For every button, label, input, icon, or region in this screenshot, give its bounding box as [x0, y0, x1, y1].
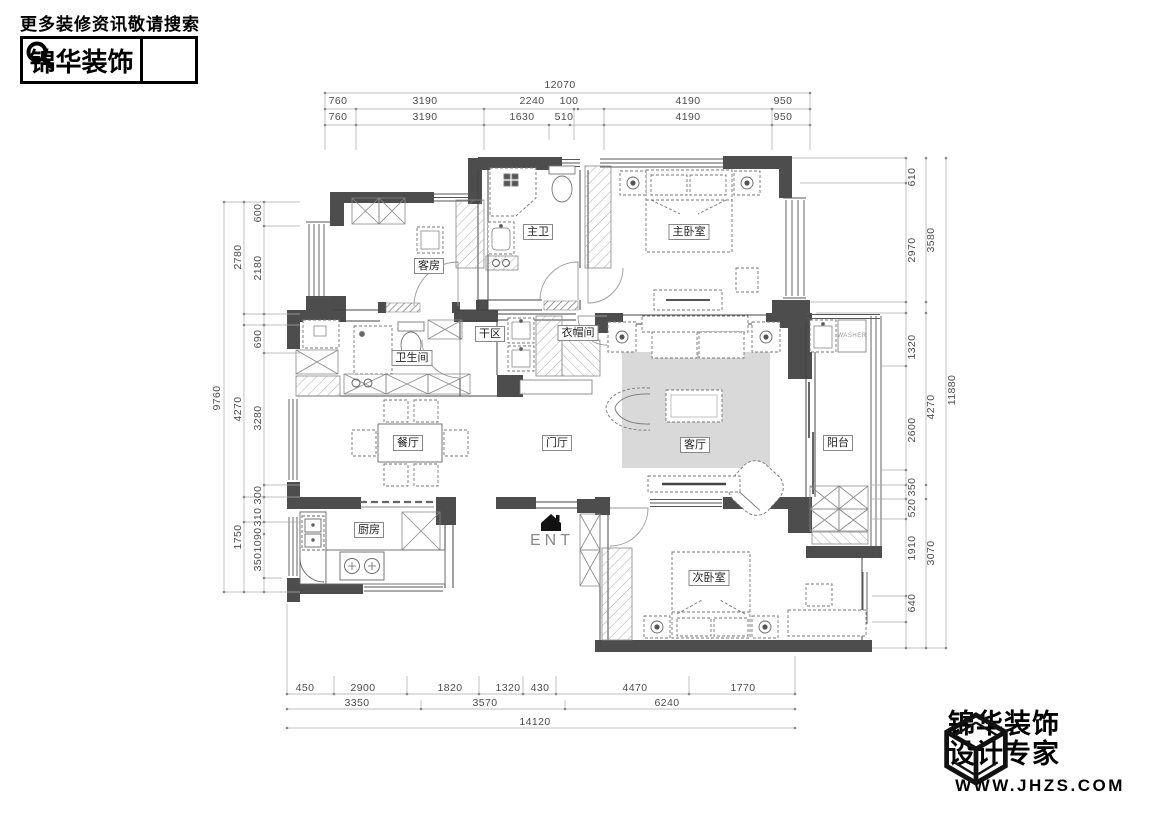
- cube-logo-icon: [940, 710, 1012, 788]
- room-label-master-bath: 主卫: [523, 224, 553, 240]
- dining-chair: [444, 430, 468, 456]
- room-label-master-bed: 主卧室: [669, 224, 710, 240]
- desk-chair: [806, 584, 832, 606]
- stove: [340, 552, 384, 580]
- dim: 450: [296, 682, 315, 694]
- dim: 3190: [413, 95, 438, 107]
- dining-chair: [384, 400, 408, 422]
- second-bedroom-door: [610, 508, 648, 546]
- guest-furniture: [417, 227, 443, 253]
- master-bath-fixtures: [488, 166, 575, 267]
- dim: 760: [329, 111, 348, 123]
- dim: 1320: [496, 682, 521, 694]
- dining-chair: [384, 464, 408, 486]
- dim: 4270: [925, 395, 937, 420]
- dining-chair: [414, 400, 438, 422]
- dim: 310: [252, 508, 264, 527]
- master-bath-counter: [486, 256, 518, 270]
- dim: 520: [906, 499, 918, 518]
- dim: 1750: [232, 525, 244, 550]
- master-bath-door: [540, 262, 578, 300]
- dim: 1770: [731, 682, 756, 694]
- header-brand-box: 锦华装饰: [20, 36, 198, 84]
- dim: 2900: [351, 682, 376, 694]
- dim-left-total: 9760: [211, 386, 223, 411]
- dim: 1320: [906, 335, 918, 360]
- tv-cabinet: [648, 476, 740, 492]
- floor-plan-drawing: [0, 0, 1158, 818]
- second-bed: [644, 552, 866, 638]
- dim: 350: [906, 478, 918, 497]
- dim: 2780: [232, 245, 244, 270]
- room-label-dry-area: 干区: [475, 326, 505, 342]
- divider: [140, 39, 143, 81]
- master-bedroom-door: [588, 268, 623, 303]
- guest-closet: [456, 200, 484, 268]
- dim: 760: [329, 95, 348, 107]
- dim: 6240: [655, 697, 680, 709]
- sofa: [608, 316, 780, 358]
- desk: [788, 610, 866, 636]
- entrance-icon: [541, 514, 561, 531]
- entrance-label: ENT: [530, 532, 574, 550]
- dim: 690: [252, 330, 264, 349]
- dim: 3350: [345, 697, 370, 709]
- dim: 640: [906, 594, 918, 613]
- dim: 3280: [252, 406, 264, 431]
- dim: 4470: [623, 682, 648, 694]
- dim: 3190: [413, 111, 438, 123]
- room-label-cloak: 衣帽间: [558, 325, 599, 341]
- room-label-living: 客厅: [680, 437, 710, 453]
- dim: 950: [774, 95, 793, 107]
- dim: 4190: [676, 95, 701, 107]
- dim: 1910: [906, 536, 918, 561]
- dim: 2240: [520, 95, 545, 107]
- dim: 610: [906, 168, 918, 187]
- room-label-foyer: 门厅: [542, 435, 572, 451]
- dim: 2970: [906, 238, 918, 263]
- dim: 4190: [676, 111, 701, 123]
- dining-chair: [352, 430, 376, 456]
- balcony-shelf: [812, 532, 868, 544]
- dim: 3570: [473, 697, 498, 709]
- toilet-tank: [549, 166, 575, 174]
- shoe-cabinet: [580, 514, 600, 550]
- footer-logo: 锦华装饰 设计专家 WWW.JHZS.COM: [940, 710, 1140, 796]
- room-label-dining: 餐厅: [393, 435, 423, 451]
- second-bed-wardrobe: [602, 548, 632, 640]
- dim: 600: [252, 204, 264, 223]
- master-wardrobe: [585, 166, 611, 268]
- dim: 2600: [906, 418, 918, 443]
- coffee-table: [666, 390, 722, 422]
- dim: 3070: [925, 541, 937, 566]
- bath-cabinet: [296, 376, 340, 396]
- dim: 1820: [438, 682, 463, 694]
- master-bed: [620, 170, 760, 310]
- dining-chair: [414, 464, 438, 486]
- fridge: [402, 512, 440, 550]
- dim: 350: [252, 553, 264, 572]
- toilet: [552, 176, 572, 202]
- dim-top-total: 12070: [544, 79, 575, 91]
- room-label-balcony: 阳台: [823, 435, 853, 451]
- header-tagline: 更多装修资讯敬请搜索: [20, 10, 200, 35]
- toilet-tank: [398, 322, 424, 331]
- chair: [736, 268, 758, 292]
- room-label-bath: 卫生间: [392, 350, 433, 366]
- dim-bottom-total: 14120: [519, 716, 550, 728]
- dim: 4270: [232, 397, 244, 422]
- dim-right-total: 11880: [946, 375, 958, 405]
- cloakroom-closet-2: [562, 340, 600, 376]
- washer-label: WASHER: [837, 333, 866, 339]
- room-label-kitchen: 厨房: [354, 522, 384, 538]
- dim: 100: [560, 95, 579, 107]
- bench: [520, 380, 592, 394]
- room-label-second-bed: 次卧室: [689, 570, 730, 586]
- dim: 300: [252, 486, 264, 505]
- dim: 510: [555, 111, 574, 123]
- dim: 1090: [252, 528, 264, 553]
- floor-plan-page: 更多装修资讯敬请搜索 锦华装饰 客房 主卫 主卧室 干区 卫生间 衣帽间 餐厅 …: [0, 0, 1158, 818]
- dim: 3580: [925, 228, 937, 253]
- dim: 950: [774, 111, 793, 123]
- dim: 1630: [510, 111, 535, 123]
- dim: 2180: [252, 256, 264, 281]
- dim: 430: [531, 682, 550, 694]
- room-label-guest: 客房: [414, 258, 444, 274]
